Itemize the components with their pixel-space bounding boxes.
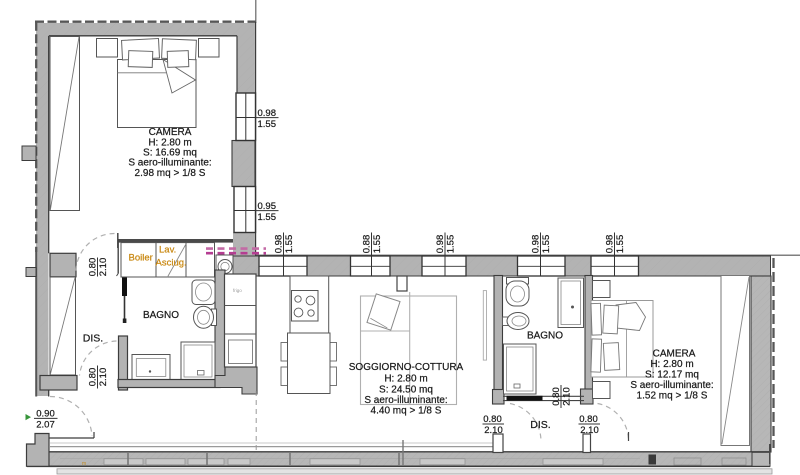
svg-text:0.88: 0.88 bbox=[362, 235, 373, 254]
svg-text:0.80: 0.80 bbox=[483, 414, 502, 425]
svg-text:S: 24.50 mq: S: 24.50 mq bbox=[379, 385, 433, 396]
svg-text:1.52 mq > 1/8 S: 1.52 mq > 1/8 S bbox=[637, 391, 708, 402]
svg-text:0.80: 0.80 bbox=[579, 414, 598, 425]
svg-text:S aero-illuminante:: S aero-illuminante: bbox=[364, 395, 447, 406]
svg-text:2.10: 2.10 bbox=[98, 368, 109, 387]
svg-text:H: 2.80 m: H: 2.80 m bbox=[384, 374, 427, 385]
svg-text:Lav.: Lav. bbox=[159, 245, 176, 256]
svg-text:0.98: 0.98 bbox=[531, 235, 542, 254]
svg-text:BAGNO: BAGNO bbox=[527, 331, 563, 342]
svg-text:2.10: 2.10 bbox=[580, 425, 599, 436]
svg-text:frigo: frigo bbox=[233, 288, 242, 293]
svg-text:4.40 mq > 1/8 S: 4.40 mq > 1/8 S bbox=[371, 406, 442, 417]
svg-text:DIS.: DIS. bbox=[83, 333, 103, 345]
svg-text:Boiler: Boiler bbox=[129, 253, 153, 264]
svg-text:SOGGIORNO-COTTURA: SOGGIORNO-COTTURA bbox=[349, 362, 464, 373]
svg-text:BAGNO: BAGNO bbox=[143, 310, 179, 321]
svg-text:S aero-illuminante:: S aero-illuminante: bbox=[630, 380, 713, 391]
svg-text:0.90: 0.90 bbox=[36, 409, 55, 420]
svg-text:0.80: 0.80 bbox=[88, 368, 99, 387]
svg-text:1.55: 1.55 bbox=[258, 119, 277, 130]
svg-text:DIS.: DIS. bbox=[530, 419, 550, 431]
svg-text:0.80: 0.80 bbox=[88, 258, 99, 277]
svg-text:S: 12.17 mq: S: 12.17 mq bbox=[645, 370, 699, 381]
svg-text:H: 2.80 m: H: 2.80 m bbox=[650, 359, 693, 370]
svg-text:m: m bbox=[82, 461, 86, 467]
svg-text:1.55: 1.55 bbox=[372, 235, 383, 254]
svg-text:1.55: 1.55 bbox=[446, 235, 457, 254]
svg-text:2.07: 2.07 bbox=[36, 420, 55, 431]
svg-text:CAMERA: CAMERA bbox=[653, 349, 696, 360]
svg-text:0.98: 0.98 bbox=[435, 235, 446, 254]
svg-text:1.55: 1.55 bbox=[615, 235, 626, 254]
svg-text:2.10: 2.10 bbox=[562, 387, 573, 406]
svg-text:1.55: 1.55 bbox=[284, 235, 295, 254]
svg-text:2.10: 2.10 bbox=[98, 258, 109, 277]
svg-text:0.98: 0.98 bbox=[274, 235, 285, 254]
svg-text:1.55: 1.55 bbox=[258, 212, 277, 223]
svg-text:0.98: 0.98 bbox=[605, 235, 616, 254]
svg-text:2.10: 2.10 bbox=[484, 425, 503, 436]
svg-text:1.55: 1.55 bbox=[541, 235, 552, 254]
svg-text:2.98 mq > 1/8 S: 2.98 mq > 1/8 S bbox=[135, 168, 206, 179]
svg-text:0.80: 0.80 bbox=[551, 387, 562, 406]
svg-text:Asciug.: Asciug. bbox=[156, 258, 187, 269]
